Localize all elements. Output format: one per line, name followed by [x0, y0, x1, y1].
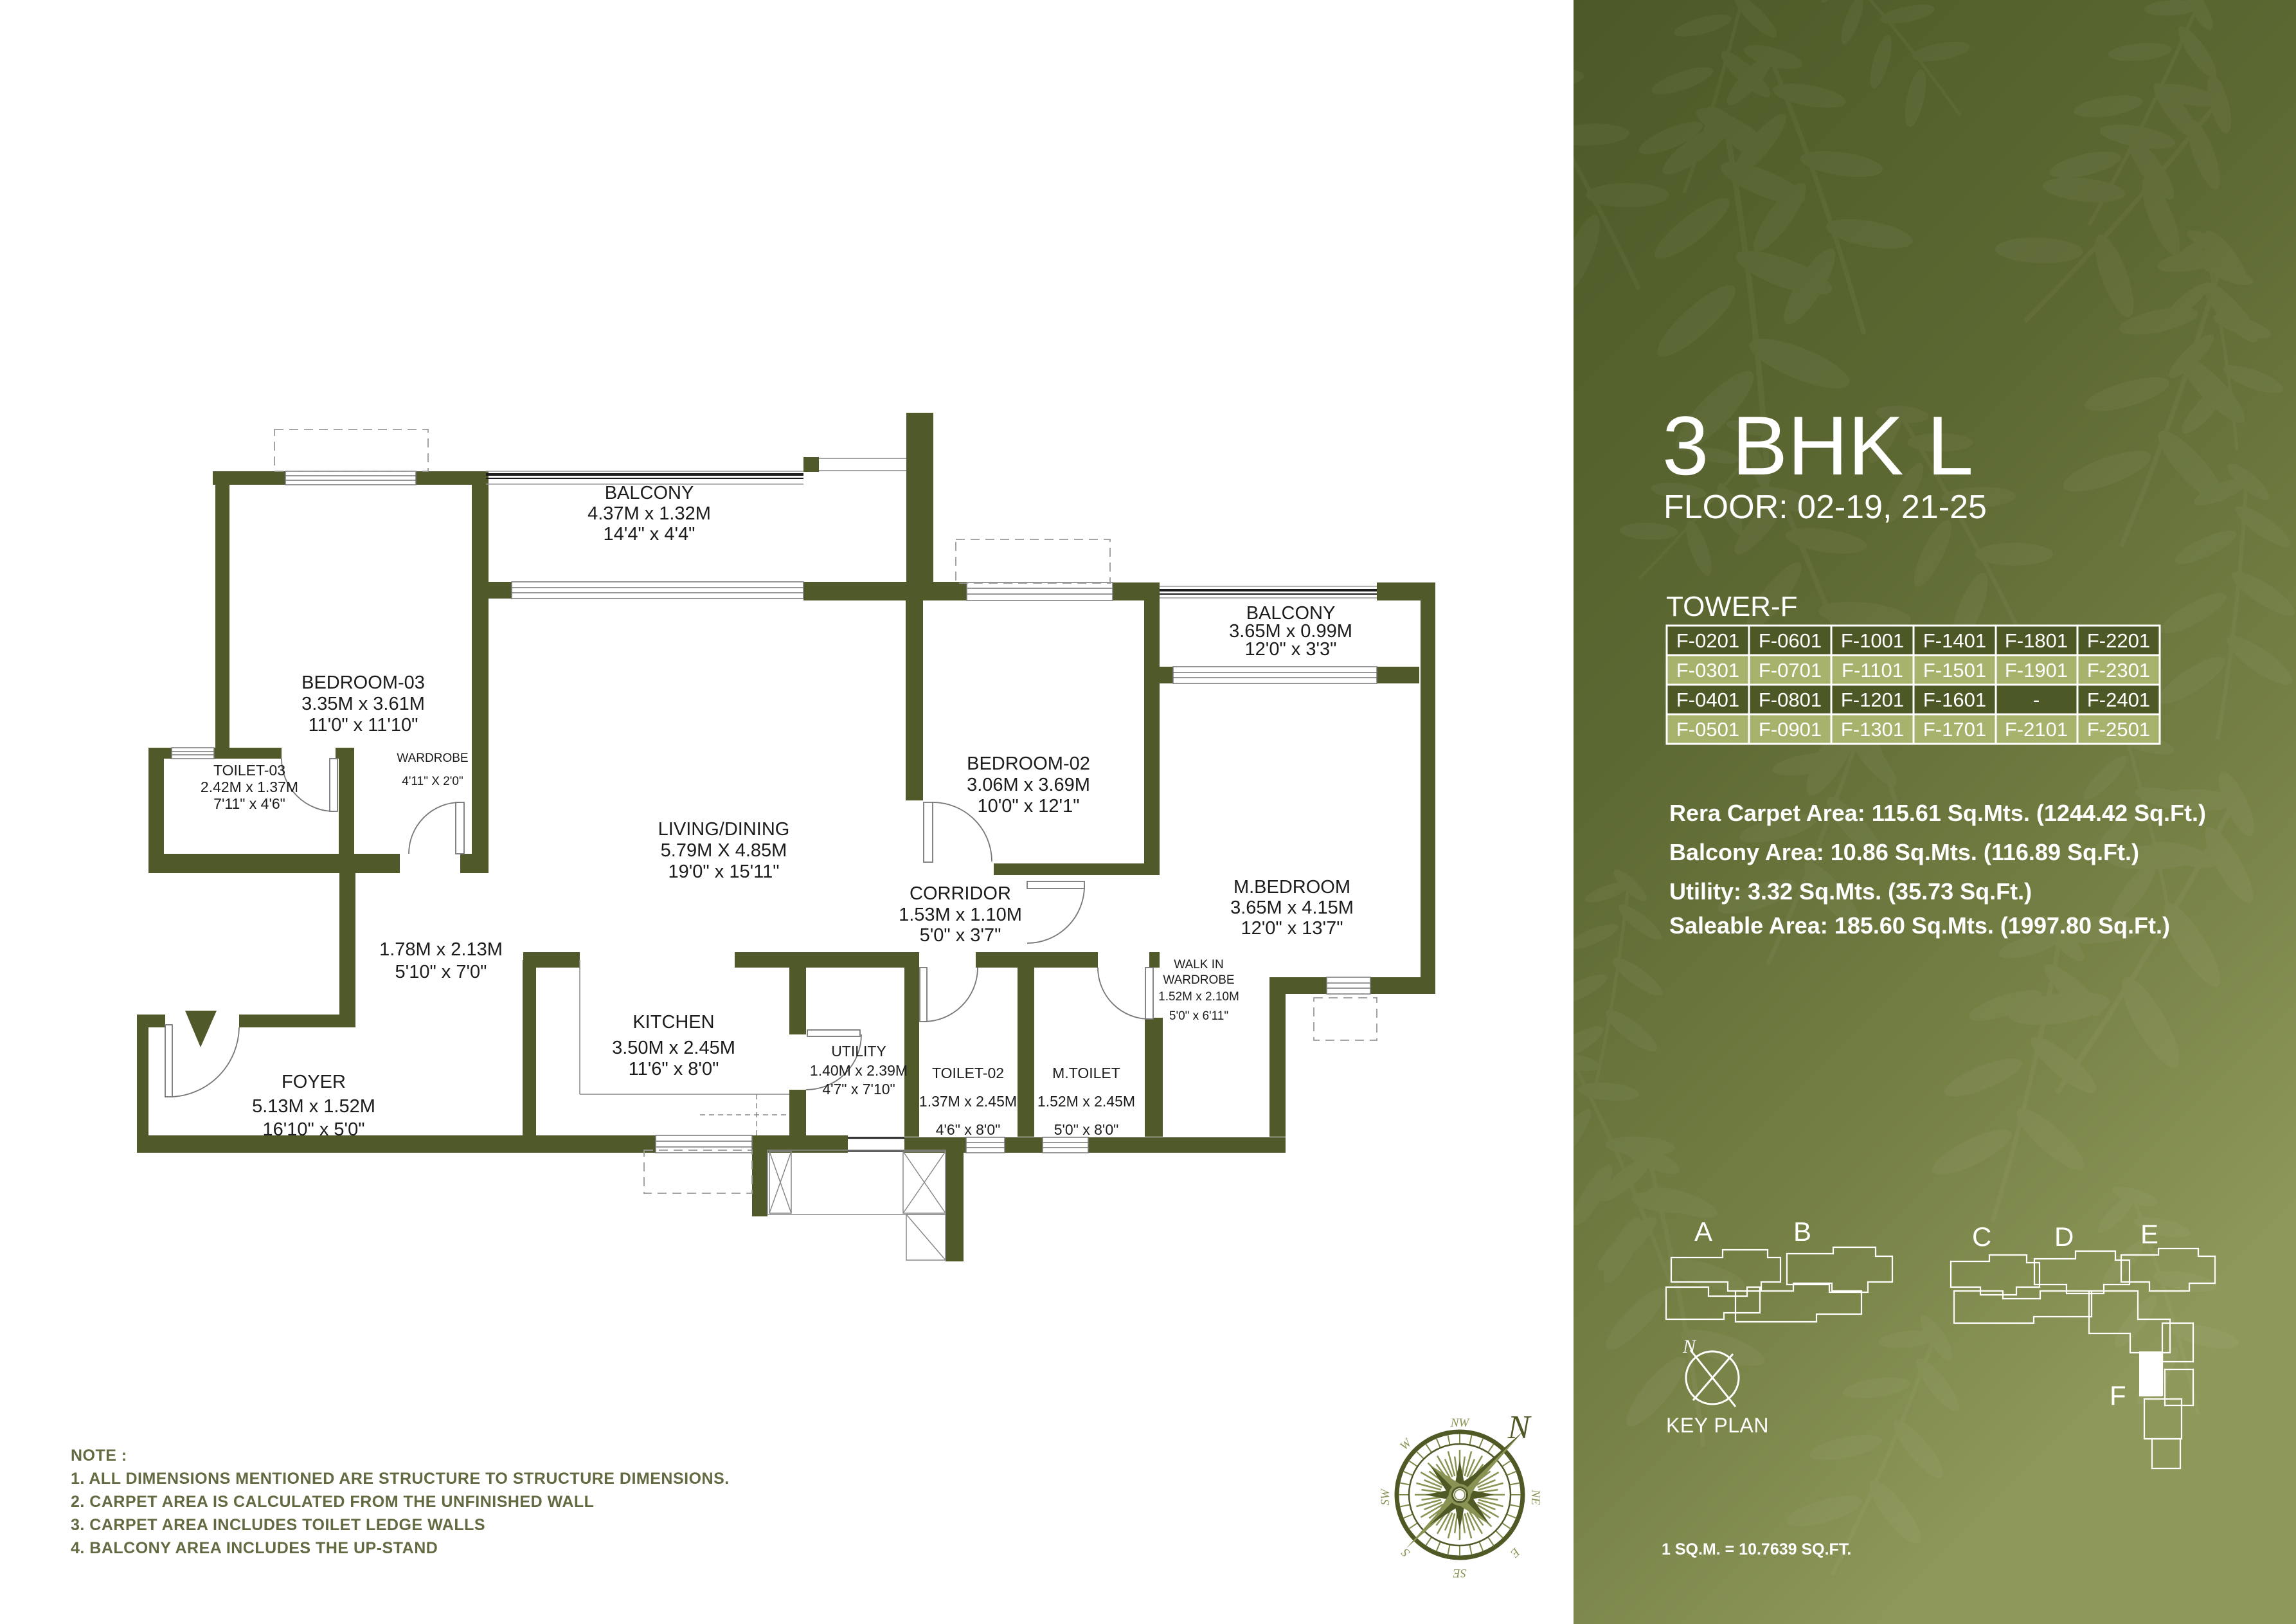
- svg-text:F-1701: F-1701: [1923, 718, 1986, 741]
- svg-text:4.37M x 1.32M: 4.37M x 1.32M: [587, 503, 711, 524]
- svg-text:3.35M x 3.61M: 3.35M x 3.61M: [301, 694, 425, 714]
- svg-text:N: N: [1682, 1336, 1697, 1357]
- svg-text:SE: SE: [1453, 1566, 1467, 1580]
- svg-text:16'10" x 5'0": 16'10" x 5'0": [262, 1119, 364, 1140]
- svg-text:F-2101: F-2101: [2005, 718, 2068, 741]
- svg-text:1.40M x 2.39M: 1.40M x 2.39M: [810, 1062, 908, 1079]
- svg-text:SW: SW: [1379, 1488, 1392, 1506]
- svg-text:5'10" x 7'0": 5'10" x 7'0": [395, 962, 487, 982]
- svg-text:3.06M x 3.69M: 3.06M x 3.69M: [967, 775, 1090, 795]
- svg-text:M.BEDROOM: M.BEDROOM: [1233, 877, 1350, 898]
- svg-text:2. CARPET AREA IS CALCULATED F: 2. CARPET AREA IS CALCULATED FROM THE UN…: [71, 1493, 594, 1511]
- svg-text:KITCHEN: KITCHEN: [632, 1012, 714, 1033]
- svg-text:3.65M x 4.15M: 3.65M x 4.15M: [1230, 898, 1354, 918]
- svg-text:NW: NW: [1450, 1416, 1471, 1430]
- svg-text:14'4" x 4'4": 14'4" x 4'4": [604, 524, 695, 545]
- svg-text:F: F: [2110, 1380, 2126, 1411]
- svg-text:F-0401: F-0401: [1676, 689, 1739, 711]
- svg-text:TOILET-03: TOILET-03: [213, 762, 285, 779]
- svg-text:KEY PLAN: KEY PLAN: [1666, 1414, 1769, 1437]
- svg-text:F-0601: F-0601: [1759, 629, 1822, 652]
- svg-text:NE: NE: [1529, 1489, 1542, 1506]
- svg-text:WARDROBE: WARDROBE: [1163, 973, 1234, 987]
- svg-text:12'0" x 13'7": 12'0" x 13'7": [1241, 918, 1343, 939]
- svg-text:F-1501: F-1501: [1923, 659, 1986, 681]
- svg-text:5.13M x 1.52M: 5.13M x 1.52M: [252, 1096, 375, 1117]
- svg-text:5'0" x 6'11": 5'0" x 6'11": [1169, 1009, 1228, 1023]
- svg-text:F-1401: F-1401: [1923, 629, 1986, 652]
- svg-text:NOTE :: NOTE :: [71, 1447, 127, 1465]
- svg-text:4'11" X 2'0": 4'11" X 2'0": [402, 775, 463, 788]
- svg-text:5.79M X 4.85M: 5.79M X 4.85M: [661, 840, 787, 861]
- svg-text:F-0701: F-0701: [1759, 659, 1822, 681]
- svg-text:5'0" x 8'0": 5'0" x 8'0": [1054, 1121, 1119, 1138]
- svg-text:N: N: [1507, 1409, 1532, 1446]
- svg-text:10'0" x 12'1": 10'0" x 12'1": [977, 796, 1079, 817]
- svg-text:3 BHK L: 3 BHK L: [1662, 399, 1973, 492]
- svg-text:WALK IN: WALK IN: [1174, 958, 1223, 971]
- svg-text:Utility: 3.32 Sq.Mts. (35.73 S: Utility: 3.32 Sq.Mts. (35.73 Sq.Ft.): [1669, 878, 2032, 905]
- svg-text:BALCONY: BALCONY: [605, 483, 694, 503]
- svg-text:BEDROOM-03: BEDROOM-03: [301, 672, 425, 693]
- svg-text:TOILET-02: TOILET-02: [932, 1065, 1004, 1081]
- svg-text:1.52M x 2.45M: 1.52M x 2.45M: [1037, 1093, 1135, 1110]
- svg-text:F-2401: F-2401: [2087, 689, 2150, 711]
- svg-text:F-1601: F-1601: [1923, 689, 1986, 711]
- svg-text:F-1001: F-1001: [1841, 629, 1904, 652]
- svg-text:7'11" x 4'6": 7'11" x 4'6": [213, 795, 285, 812]
- svg-text:BEDROOM-02: BEDROOM-02: [967, 753, 1090, 774]
- svg-text:F-2301: F-2301: [2087, 659, 2150, 681]
- svg-text:M.TOILET: M.TOILET: [1052, 1065, 1120, 1081]
- svg-text:C: C: [1972, 1222, 1991, 1252]
- svg-text:F-1201: F-1201: [1841, 689, 1904, 711]
- svg-text:E: E: [2140, 1219, 2158, 1249]
- svg-text:4. BALCONY AREA INCLUDES THE U: 4. BALCONY AREA INCLUDES THE UP-STAND: [71, 1539, 438, 1557]
- svg-text:F-0301: F-0301: [1676, 659, 1739, 681]
- svg-text:LIVING/DINING: LIVING/DINING: [658, 819, 790, 840]
- svg-text:UTILITY: UTILITY: [831, 1043, 886, 1060]
- svg-text:1. ALL DIMENSIONS MENTIONED AR: 1. ALL DIMENSIONS MENTIONED ARE STRUCTUR…: [71, 1470, 730, 1488]
- svg-text:4'7" x 7'10": 4'7" x 7'10": [822, 1081, 895, 1097]
- svg-text:A: A: [1694, 1216, 1712, 1247]
- svg-text:F-1901: F-1901: [2005, 659, 2068, 681]
- svg-text:F-0201: F-0201: [1676, 629, 1739, 652]
- svg-text:WARDROBE: WARDROBE: [397, 752, 468, 765]
- svg-text:B: B: [1793, 1216, 1811, 1247]
- svg-text:-: -: [2033, 689, 2040, 711]
- svg-text:Saleable Area: 185.60 Sq.Mts.: Saleable Area: 185.60 Sq.Mts. (1997.80 S…: [1669, 912, 2170, 939]
- svg-text:5'0" x 3'7": 5'0" x 3'7": [920, 925, 1001, 946]
- svg-text:11'6" x 8'0": 11'6" x 8'0": [629, 1059, 719, 1079]
- svg-text:1.78M x 2.13M: 1.78M x 2.13M: [379, 939, 503, 960]
- svg-text:3. CARPET AREA INCLUDES TOILET: 3. CARPET AREA INCLUDES TOILET LEDGE WAL…: [71, 1516, 485, 1534]
- svg-text:12'0" x 3'3": 12'0" x 3'3": [1245, 639, 1337, 660]
- svg-text:2.42M x 1.37M: 2.42M x 1.37M: [201, 779, 298, 795]
- svg-text:1.52M x 2.10M: 1.52M x 2.10M: [1158, 990, 1239, 1004]
- svg-text:1.53M x 1.10M: 1.53M x 1.10M: [899, 905, 1022, 925]
- svg-text:3.50M x 2.45M: 3.50M x 2.45M: [612, 1038, 735, 1058]
- svg-text:Balcony Area: 10.86 Sq.Mts. (1: Balcony Area: 10.86 Sq.Mts. (116.89 Sq.F…: [1669, 839, 2139, 865]
- svg-text:F-1301: F-1301: [1841, 718, 1904, 741]
- svg-text:F-1801: F-1801: [2005, 629, 2068, 652]
- svg-text:19'0" x 15'11": 19'0" x 15'11": [668, 862, 779, 882]
- svg-text:F-2501: F-2501: [2087, 718, 2150, 741]
- svg-text:D: D: [2054, 1222, 2074, 1252]
- svg-text:F-0501: F-0501: [1676, 718, 1739, 741]
- svg-text:F-0801: F-0801: [1759, 689, 1822, 711]
- svg-text:FLOOR: 02-19, 21-25: FLOOR: 02-19, 21-25: [1664, 489, 1987, 526]
- svg-text:CORRIDOR: CORRIDOR: [910, 883, 1011, 904]
- svg-text:1 SQ.M. = 10.7639 SQ.FT.: 1 SQ.M. = 10.7639 SQ.FT.: [1662, 1540, 1851, 1558]
- svg-text:FOYER: FOYER: [282, 1072, 346, 1092]
- svg-text:1.37M x 2.45M: 1.37M x 2.45M: [919, 1093, 1017, 1110]
- svg-text:11'0" x 11'10": 11'0" x 11'10": [309, 715, 418, 735]
- svg-text:F-1101: F-1101: [1842, 659, 1903, 681]
- svg-text:TOWER-F: TOWER-F: [1666, 591, 1798, 622]
- svg-text:F-2201: F-2201: [2087, 629, 2150, 652]
- svg-text:Rera Carpet Area: 115.61 Sq.Mt: Rera Carpet Area: 115.61 Sq.Mts. (1244.4…: [1669, 800, 2206, 826]
- svg-text:F-0901: F-0901: [1759, 718, 1822, 741]
- svg-text:4'6" x 8'0": 4'6" x 8'0": [936, 1121, 1001, 1138]
